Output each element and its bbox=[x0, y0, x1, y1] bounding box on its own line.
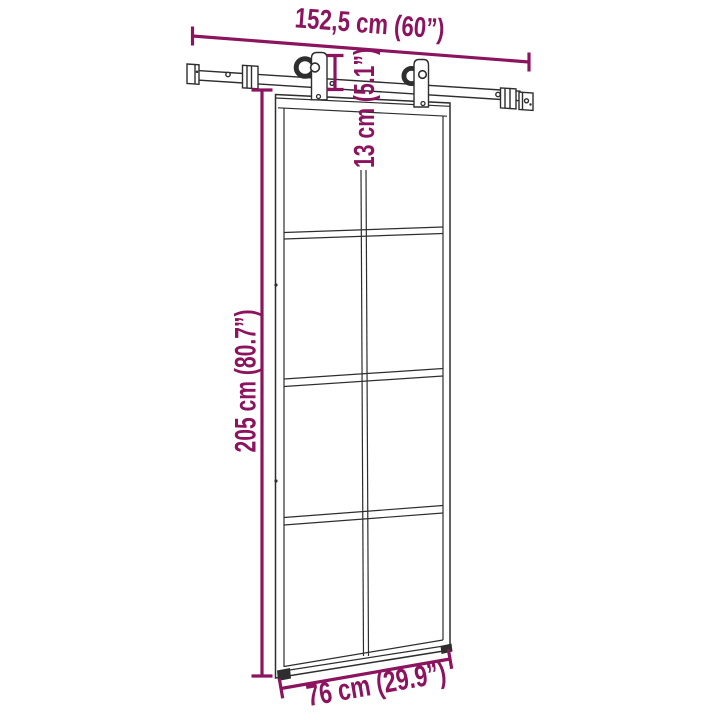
track-end-cap-left bbox=[187, 64, 199, 84]
hanger-strap bbox=[414, 60, 429, 108]
rail-hole bbox=[226, 72, 230, 76]
screw-head bbox=[529, 103, 531, 105]
axle-bolt bbox=[419, 71, 427, 79]
dimension-tick bbox=[279, 679, 282, 699]
screw-hole bbox=[525, 99, 529, 103]
hanger-left bbox=[296, 53, 327, 100]
dimension-rail-length-label: 152,5 cm (60”) bbox=[294, 2, 446, 45]
hanger-strap bbox=[312, 53, 328, 100]
mount-hole bbox=[274, 283, 277, 286]
dimension-drop-label: 13 cm (5.1”) bbox=[349, 48, 381, 168]
dimension-tick bbox=[448, 649, 451, 669]
track-stop-left bbox=[243, 65, 259, 89]
dimension-height: 205 cm (80.7”) bbox=[230, 90, 273, 676]
screw-head bbox=[196, 71, 199, 74]
hanger-right bbox=[404, 60, 429, 108]
axle-bolt bbox=[311, 63, 320, 72]
rail-hole bbox=[496, 92, 500, 96]
track-end-cap-right bbox=[519, 92, 533, 110]
barn-door-diagram: 152,5 cm (60”) 13 cm (5.1”) 205 cm (80.7… bbox=[0, 0, 720, 720]
mount-hole bbox=[274, 479, 277, 482]
mount-bolt bbox=[421, 102, 425, 106]
mount-bolt bbox=[317, 95, 321, 99]
dimension-height-label: 205 cm (80.7”) bbox=[230, 310, 263, 453]
track-stop-right bbox=[501, 88, 517, 109]
door bbox=[274, 95, 452, 682]
dimension-diagram-canvas: 152,5 cm (60”) 13 cm (5.1”) 205 cm (80.7… bbox=[0, 0, 720, 720]
rail-hole bbox=[330, 82, 334, 86]
